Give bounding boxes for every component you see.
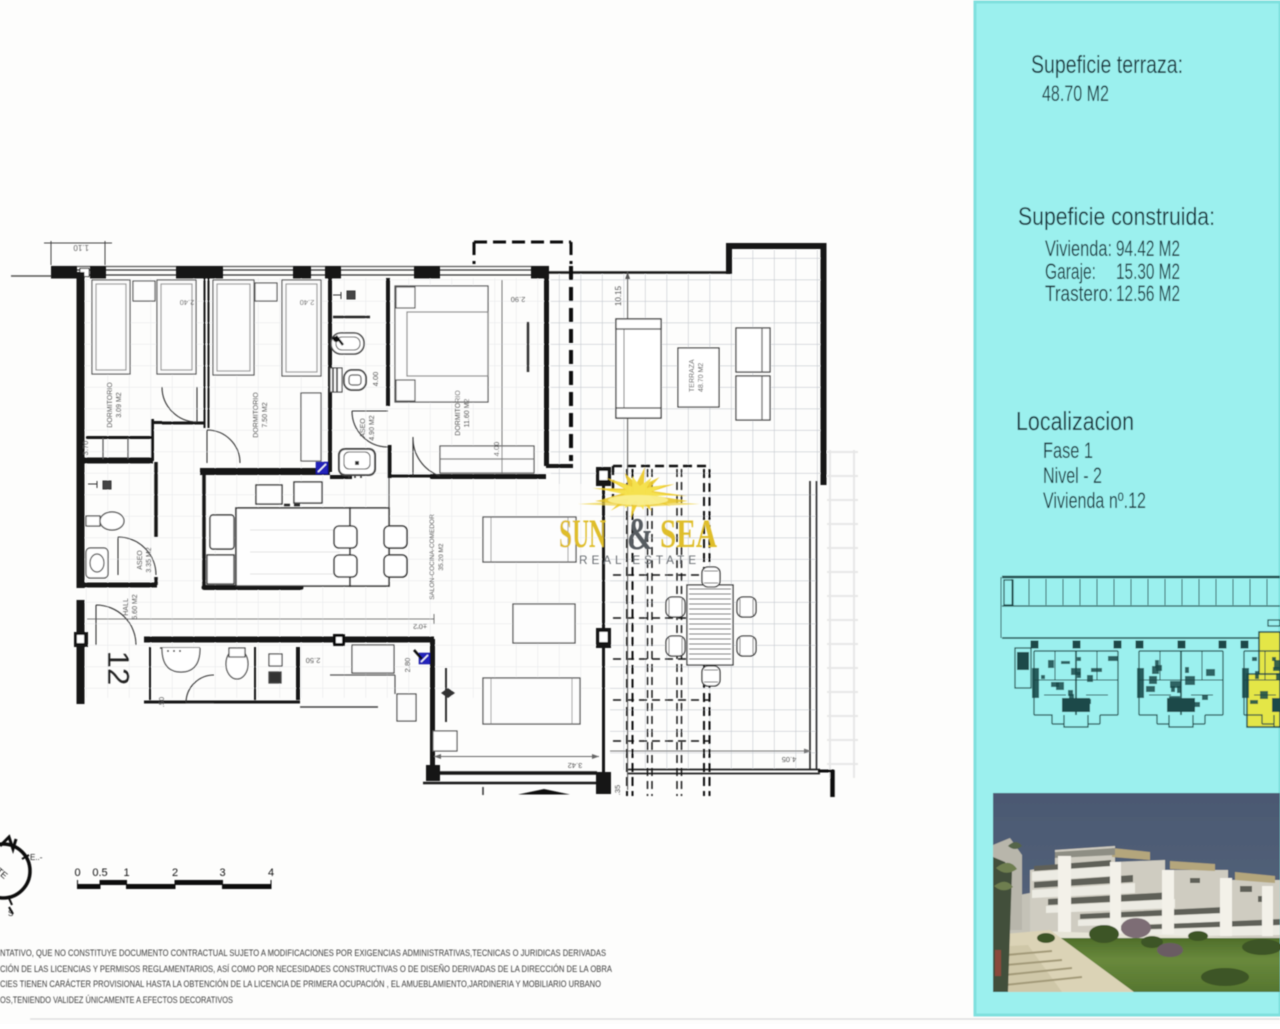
svg-text:ASEO: ASEO [360, 418, 367, 438]
svg-text:DORMITORIO: DORMITORIO [455, 390, 462, 436]
svg-text:Supeficie construida:: Supeficie construida: [1018, 203, 1215, 231]
svg-text:Vivienda nº.12: Vivienda nº.12 [1043, 488, 1146, 513]
svg-text:DORMITORIO: DORMITORIO [107, 382, 114, 428]
svg-text:SUN: SUN [559, 511, 606, 556]
svg-text:2.90: 2.90 [511, 295, 526, 304]
svg-text:OS,TENIENDO VALIDEZ ÚNICAMENTE: OS,TENIENDO VALIDEZ ÚNICAMENTE A EFECTOS… [0, 995, 233, 1005]
svg-text:4: 4 [268, 867, 274, 879]
svg-text:35.20 M2: 35.20 M2 [438, 543, 445, 570]
svg-text:48.70 M2: 48.70 M2 [1042, 81, 1109, 106]
svg-text:Trastero:: Trastero: [1045, 281, 1113, 306]
svg-text:&: & [627, 508, 653, 559]
svg-text:12.56 M2: 12.56 M2 [1116, 281, 1180, 306]
svg-text:10.15: 10.15 [614, 285, 623, 306]
svg-text:Nivel - 2: Nivel - 2 [1043, 463, 1102, 488]
svg-text:4.00: 4.00 [371, 372, 380, 387]
svg-text:Supeficie terraza:: Supeficie terraza: [1031, 51, 1183, 79]
svg-text:94.42 M2: 94.42 M2 [1116, 236, 1180, 261]
svg-text:CIES TIENEN CARÁCTER PROVISION: CIES TIENEN CARÁCTER PROVISIONAL HASTA L… [0, 979, 601, 989]
svg-text:3.42: 3.42 [568, 761, 583, 770]
svg-text:TERRAZA: TERRAZA [689, 359, 696, 392]
svg-text:7.50 M2: 7.50 M2 [262, 402, 269, 427]
svg-text:12: 12 [101, 651, 136, 685]
svg-text:2.40: 2.40 [300, 298, 315, 307]
svg-text:1: 1 [123, 867, 129, 879]
svg-text:11.60 M2: 11.60 M2 [464, 399, 471, 428]
svg-text:0: 0 [74, 867, 80, 879]
svg-text:.35: .35 [613, 785, 622, 795]
svg-text:Fase 1: Fase 1 [1043, 438, 1093, 463]
svg-text:2.80: 2.80 [403, 658, 412, 673]
svg-text:.50: .50 [157, 697, 166, 707]
svg-text:REAL ESTATE: REAL ESTATE [579, 553, 700, 567]
svg-text:4.90 M2: 4.90 M2 [369, 415, 376, 440]
svg-text:E..-: E..- [30, 853, 43, 862]
svg-text:0.5: 0.5 [92, 867, 107, 879]
svg-text:±0'2: ±0'2 [413, 622, 427, 631]
svg-text:SEA: SEA [660, 511, 717, 556]
svg-text:3.35 M2: 3.35 M2 [146, 547, 153, 572]
svg-text:HALL: HALL [123, 598, 130, 616]
svg-text:DORMITORIO: DORMITORIO [253, 392, 260, 438]
svg-text:5.60 M2: 5.60 M2 [132, 594, 139, 619]
svg-text:2: 2 [172, 867, 178, 879]
svg-text:2.50: 2.50 [306, 656, 321, 665]
svg-text:3.09 M2: 3.09 M2 [116, 392, 123, 417]
svg-text:S: S [8, 909, 13, 918]
svg-text:CIÓN DE LAS LICENCIAS Y PERMIS: CIÓN DE LAS LICENCIAS Y PERMISOS REGLAME… [0, 964, 613, 974]
svg-text:2.40: 2.40 [180, 298, 195, 307]
svg-text:ASEO: ASEO [137, 550, 144, 570]
svg-text:3: 3 [219, 867, 225, 879]
svg-text:SALON-COCINA-COMEDOR: SALON-COCINA-COMEDOR [429, 514, 436, 600]
svg-text:1.10: 1.10 [73, 243, 89, 252]
svg-text:Localizacion: Localizacion [1016, 406, 1134, 436]
svg-text:4.00: 4.00 [492, 442, 501, 457]
svg-text:NTATIVO, QUE NO CONSTITUYE DOC: NTATIVO, QUE NO CONSTITUYE DOCUMENTO CON… [0, 948, 606, 958]
svg-text:3.70: 3.70 [81, 441, 90, 456]
svg-text:Vivienda:: Vivienda: [1045, 236, 1112, 261]
svg-text:48.70 M2: 48.70 M2 [698, 363, 705, 392]
svg-text:4.05: 4.05 [782, 755, 797, 764]
